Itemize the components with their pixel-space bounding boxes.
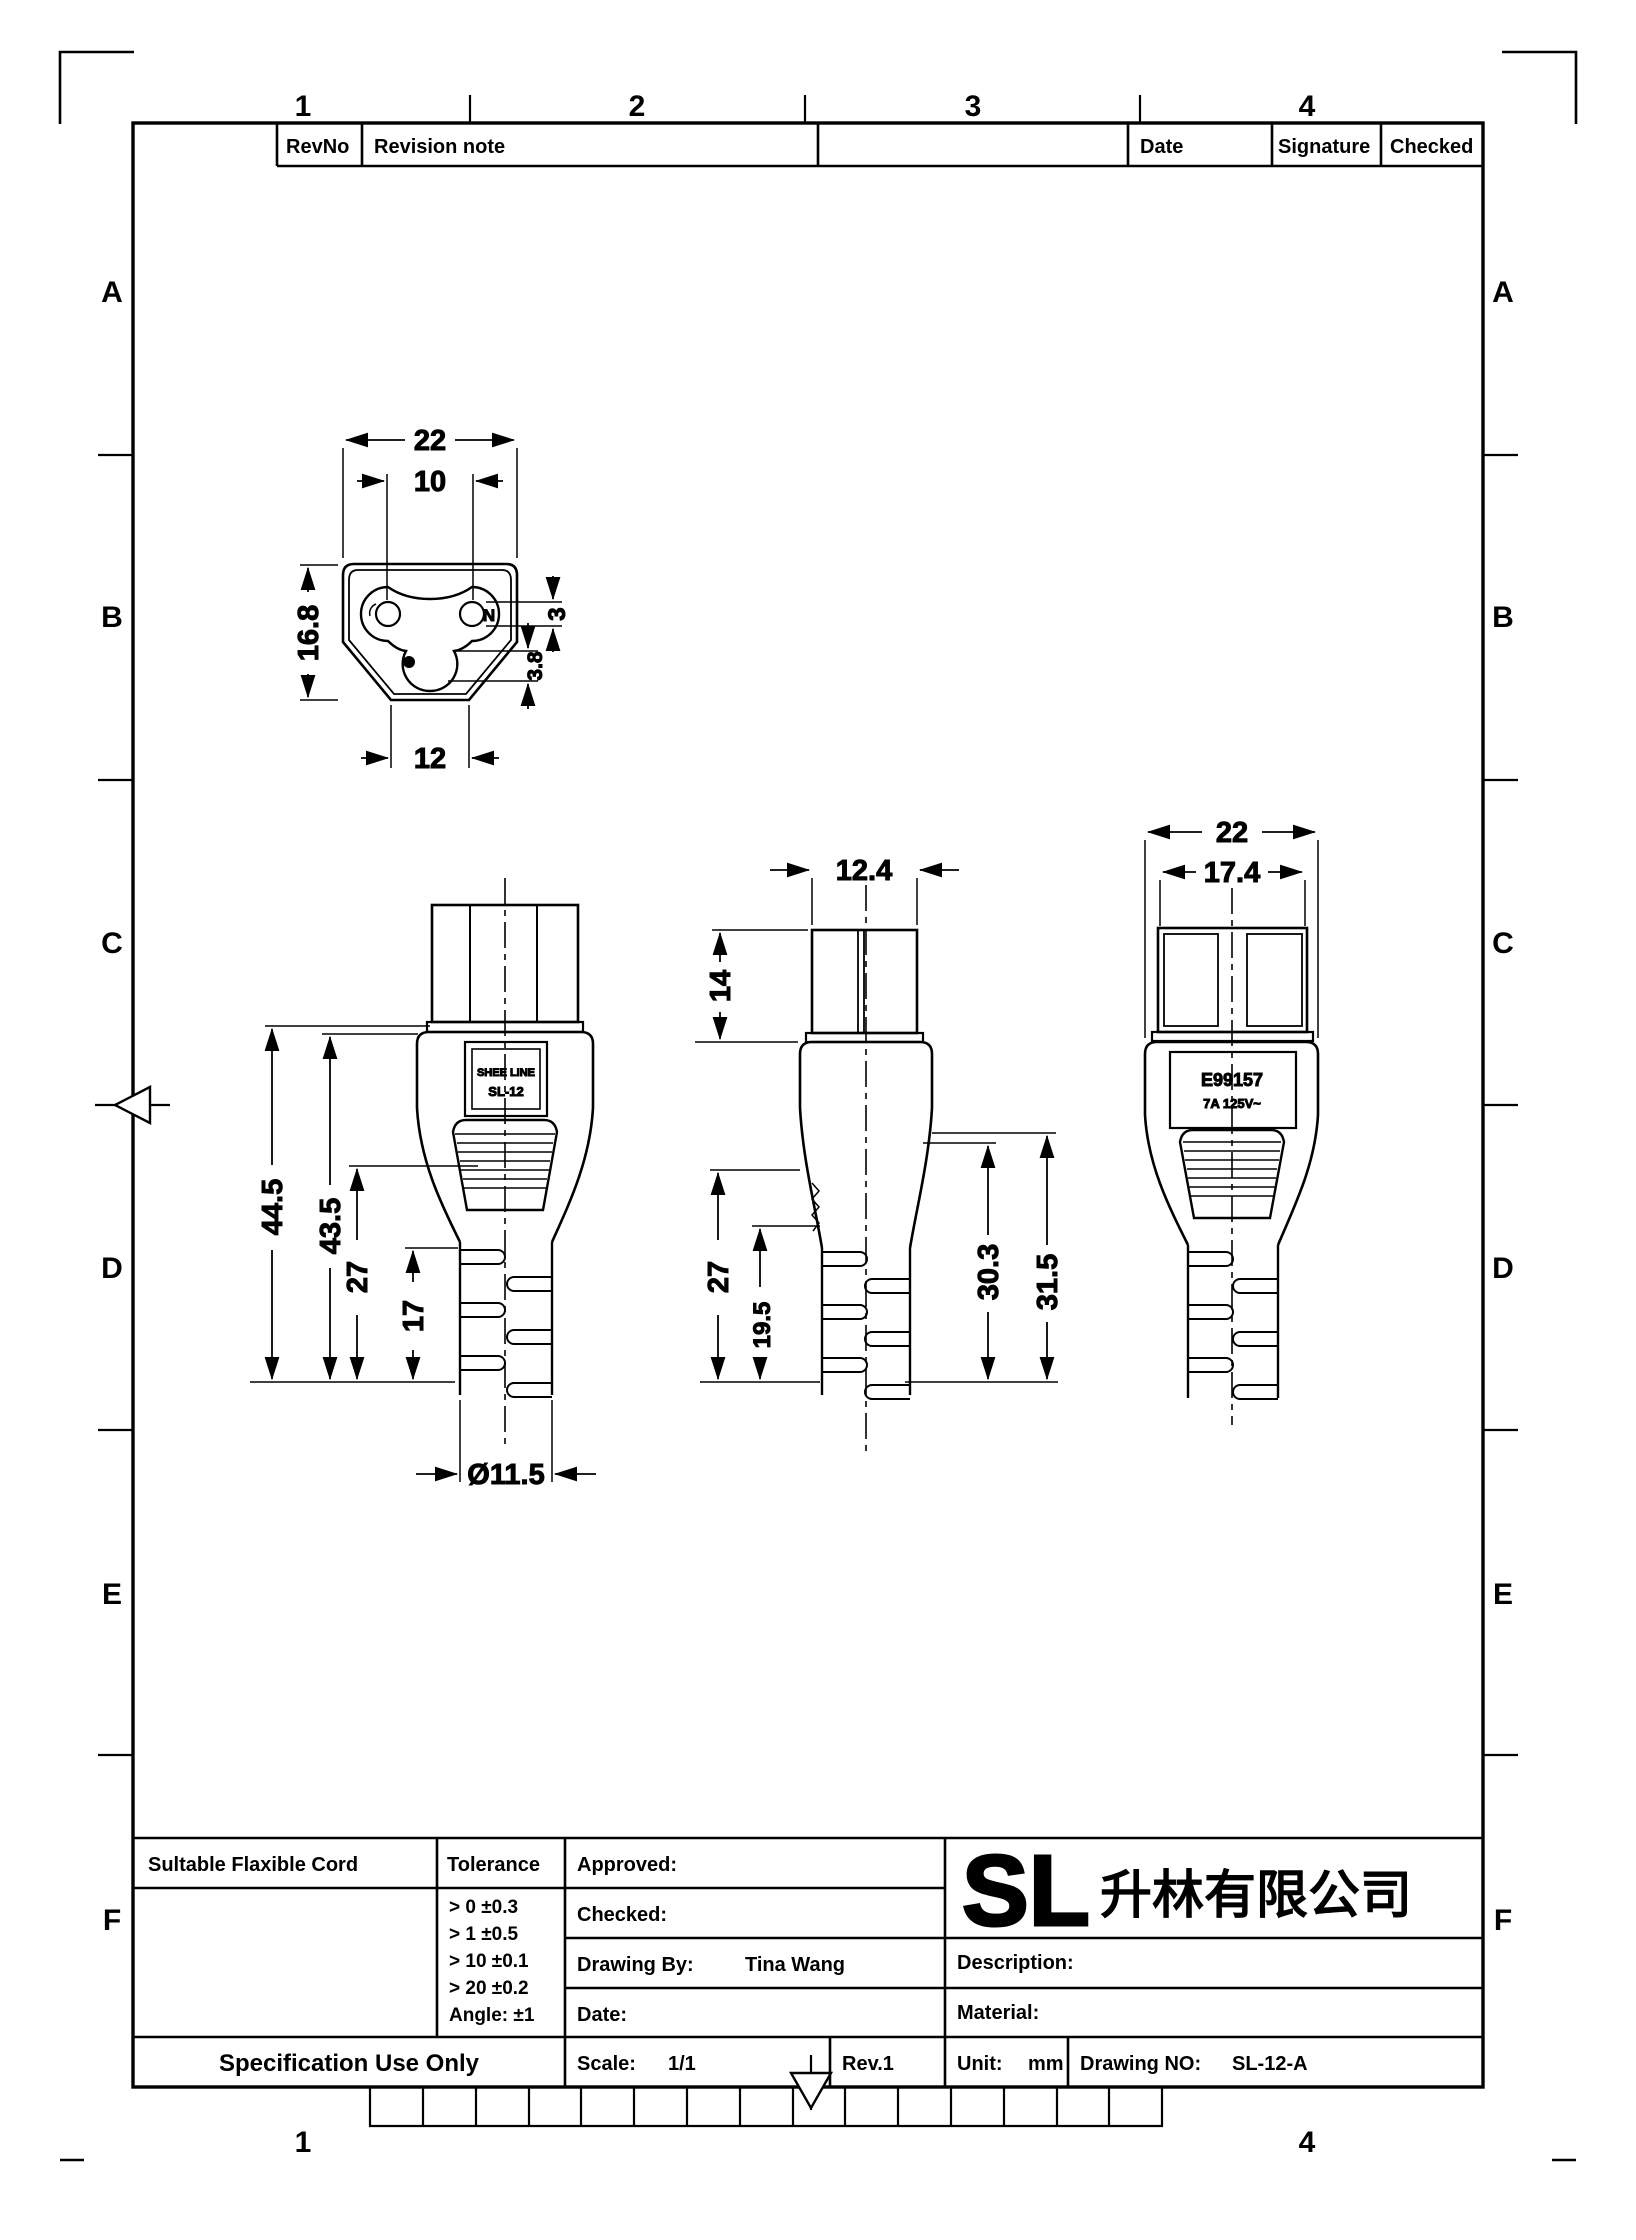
revision-col-signature: Signature <box>1278 136 1370 158</box>
revision-col-date: Date <box>1140 136 1183 158</box>
col-label-bottom-1: 1 <box>295 2126 312 2159</box>
dim-pin-dia-3: 3 <box>544 607 571 620</box>
col-label-top-3: 3 <box>965 90 982 123</box>
checked-label: Checked: <box>577 1904 667 1926</box>
row-label-left-f: F <box>103 1904 121 1937</box>
neutral-pin-hole <box>460 602 484 626</box>
back-rating-label: 7A 125V~ <box>1203 1096 1261 1111</box>
company-logo: SL <box>962 1835 1090 1947</box>
date-label: Date: <box>577 2004 627 2026</box>
dim-height-16.8: 16.8 <box>293 605 325 661</box>
row-label-right-e: E <box>1493 1578 1513 1611</box>
front-flange <box>806 1033 923 1042</box>
revision-col-revno: RevNo <box>286 136 349 158</box>
material-label: Material: <box>957 2002 1039 2024</box>
drawing-sheet: 1 2 3 4 1 4 A B C D E F A B C D E F RevN… <box>0 0 1636 2240</box>
revision-col-note: Revision note <box>374 136 505 158</box>
description-label: Description: <box>957 1952 1074 1974</box>
company-name: 升林有限公司 <box>1100 1867 1412 1925</box>
front-shroud-slot <box>858 930 864 1033</box>
row-label-right-f: F <box>1494 1904 1512 1937</box>
dim-shroud-14: 14 <box>705 970 737 1002</box>
side-label-box-outer <box>465 1042 547 1116</box>
dim-total-44.5: 44.5 <box>257 1179 289 1235</box>
tolerance-row-4: > 20 ±0.2 <box>449 1978 529 1999</box>
col-label-bottom-4: 4 <box>1299 2126 1316 2159</box>
dim-right-inner-30.3: 30.3 <box>973 1244 1005 1300</box>
side-brand-label: SHEE LINE <box>477 1067 535 1079</box>
suitable-cord-label: Sultable Flaxible Cord <box>148 1854 358 1876</box>
dim-lower-27-side: 27 <box>342 1261 374 1293</box>
back-strain-relief-sides <box>1188 1245 1278 1398</box>
dim-ribs-17: 17 <box>398 1300 430 1332</box>
dim-top-width-12.4: 12.4 <box>836 855 892 887</box>
title-block: Sultable Flaxible Cord Tolerance > 0 ±0.… <box>133 1835 1483 2087</box>
tolerance-row-5: Angle: ±1 <box>449 2005 535 2026</box>
dim-pin-spacing-10: 10 <box>414 466 446 498</box>
rev-value: Rev.1 <box>842 2053 894 2075</box>
revision-table: RevNo Revision note Date Signature Check… <box>277 123 1483 166</box>
row-label-right-d: D <box>1492 1252 1514 1285</box>
side-shroud-slots <box>470 905 537 1022</box>
corner-marks <box>60 52 1576 2160</box>
dim-gnd-dia-3.8: 3.8 <box>524 651 547 681</box>
spec-use-only-label: Specification Use Only <box>219 2050 480 2077</box>
side-strain-ribs <box>460 1250 552 1397</box>
row-label-right-a: A <box>1492 276 1514 309</box>
unit-value: mm <box>1028 2053 1064 2075</box>
row-label-left-e: E <box>102 1578 122 1611</box>
border-frame <box>60 52 1576 2160</box>
dim-bottom-width-12: 12 <box>414 743 446 775</box>
row-label-right-c: C <box>1492 927 1514 960</box>
back-view: E99157 7A 125V~ 22 17.4 <box>1145 817 1318 1425</box>
drawing-no-label: Drawing NO: <box>1080 2053 1201 2075</box>
col-label-top-1: 1 <box>295 90 312 123</box>
back-label-box <box>1170 1052 1296 1128</box>
col-label-top-4: 4 <box>1299 90 1316 123</box>
drawing-by-value: Tina Wang <box>745 1954 845 1976</box>
dim-ribs-19.5: 19.5 <box>749 1302 776 1349</box>
col-label-top-2: 2 <box>629 90 646 123</box>
revision-col-checked: Checked <box>1390 136 1473 158</box>
front-view: 12.4 14 27 19.5 30.3 31.5 <box>695 855 1064 1452</box>
drawing-no-value: SL-12-A <box>1232 2053 1308 2075</box>
row-label-left-b: B <box>101 601 123 634</box>
side-label-box-inner <box>472 1049 540 1109</box>
grid-reference-labels: 1 2 3 4 1 4 A B C D E F A B C D E F <box>101 90 1514 2159</box>
scale-label: Scale: <box>577 2053 636 2075</box>
side-model-label: SL-12 <box>488 1084 523 1099</box>
dim-width-22: 22 <box>414 425 446 457</box>
row-label-left-a: A <box>101 276 123 309</box>
dim-back-width-22: 22 <box>1216 817 1248 849</box>
back-cert-label: E99157 <box>1201 1070 1263 1090</box>
dim-back-inner-17.4: 17.4 <box>1204 857 1260 889</box>
face-outline-inner <box>349 570 511 694</box>
dim-body-43.5: 43.5 <box>315 1198 347 1254</box>
back-strain-ribs <box>1188 1252 1278 1399</box>
top-face-view: 22 10 16.8 3 3.8 12 N <box>293 425 571 775</box>
back-slot-left <box>1164 934 1218 1026</box>
back-body-taper <box>1145 1115 1318 1245</box>
tolerance-label: Tolerance <box>447 1854 540 1876</box>
side-view: SHEE LINE SL-12 44.5 43.5 27 17 Ø11.5 <box>250 878 596 1491</box>
bottom-fold-strip <box>370 2087 1162 2126</box>
dim-right-outer-31.5: 31.5 <box>1032 1254 1064 1310</box>
row-label-left-c: C <box>101 927 123 960</box>
dim-lower-27-front: 27 <box>703 1261 735 1293</box>
tolerance-row-1: > 0 ±0.3 <box>449 1897 518 1918</box>
approved-label: Approved: <box>577 1854 677 1876</box>
unit-label: Unit: <box>957 2053 1003 2075</box>
dim-cable-dia-11.5: Ø11.5 <box>467 1459 544 1491</box>
tolerance-row-3: > 10 ±0.1 <box>449 1951 529 1972</box>
live-pin-hole <box>376 602 400 626</box>
tolerance-row-2: > 1 ±0.5 <box>449 1924 518 1945</box>
row-label-left-d: D <box>101 1252 123 1285</box>
drawing-canvas: 1 2 3 4 1 4 A B C D E F A B C D E F RevN… <box>0 0 1636 2240</box>
ground-pin-dot <box>403 656 415 668</box>
inner-frame <box>133 123 1483 2087</box>
row-label-right-b: B <box>1492 601 1514 634</box>
back-slot-right <box>1247 934 1302 1026</box>
neutral-pin-label: N <box>483 606 495 625</box>
scale-value: 1/1 <box>668 2053 696 2075</box>
bottom-centering-triangle-icon <box>791 2073 831 2108</box>
drawing-by-label: Drawing By: <box>577 1954 694 1976</box>
